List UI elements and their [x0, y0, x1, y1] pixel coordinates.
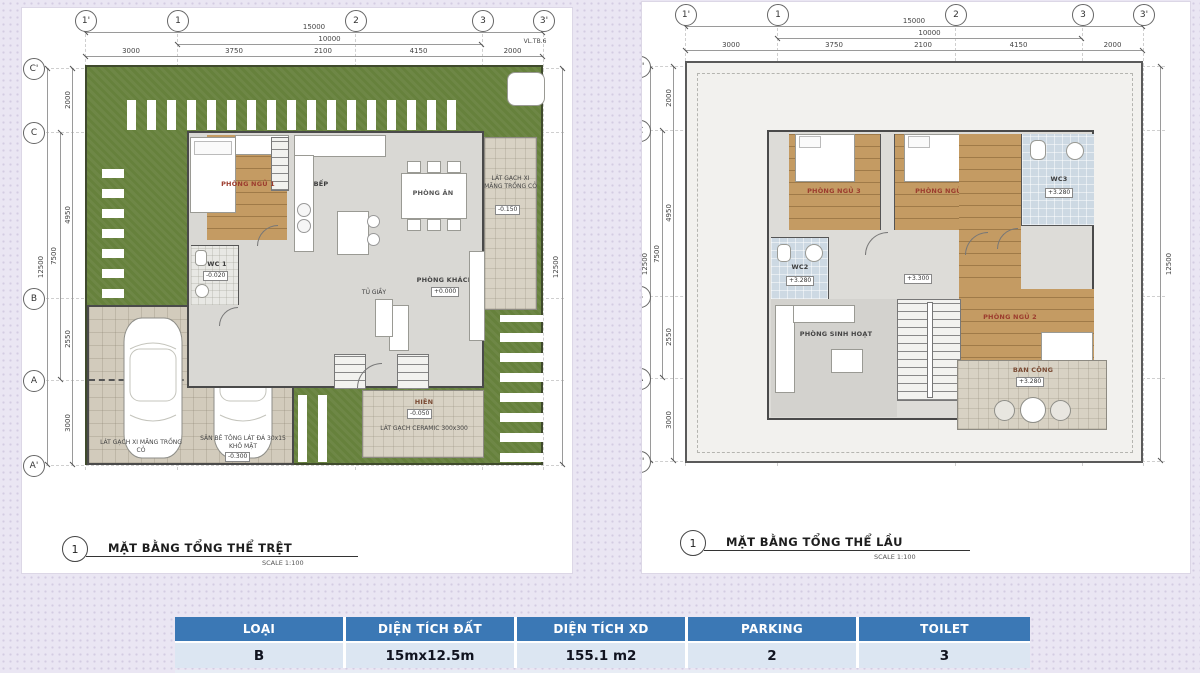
dim-text: 2100: [891, 41, 955, 49]
water-tank: [507, 72, 545, 106]
grid-bubble: 3': [1133, 4, 1155, 26]
dim-value: 4950: [665, 204, 673, 222]
patio-elevation: -0.150: [495, 205, 520, 215]
dim-line: [177, 44, 482, 45]
dim-value: 2000: [64, 91, 72, 109]
header-parking: PARKING: [688, 617, 859, 641]
grid-bubble: 3: [472, 10, 494, 32]
grid-bubble: 3: [1072, 4, 1094, 26]
dim-value: 12500: [37, 255, 45, 277]
dim-line: [777, 38, 1082, 39]
note-tag: VL.TB.6: [510, 38, 560, 46]
plan-scale: SCALE 1:100: [874, 553, 916, 561]
spec-table: LOẠI DIỆN TÍCH ĐẤT DIỆN TÍCH XD PARKING …: [175, 617, 1030, 673]
grid-bubble: A': [23, 455, 45, 477]
dim-text: 3000: [62, 380, 74, 465]
dim-text: 2550: [62, 298, 74, 380]
sink-icon: [1066, 142, 1084, 160]
dim-text: 3000: [663, 378, 675, 461]
dim-text: 2000: [62, 68, 74, 132]
roof-outline: PHÒNG NGỦ 3 PHÒNG NGỦ 4 WC2 +3.280 +3.30…: [685, 61, 1143, 463]
wc2: WC2 +3.280: [771, 237, 829, 299]
kitchen-label: BẾP: [301, 181, 341, 188]
grid-label: 1: [775, 10, 781, 20]
grid-label: C: [31, 128, 37, 138]
value-dien-tich-xd: 155.1 m2: [517, 641, 688, 668]
title-underline: [86, 556, 358, 557]
stove-icon: [297, 219, 311, 233]
shoe-cabinet-icon: [375, 299, 393, 337]
toilet-icon: [777, 244, 791, 262]
family-label: PHÒNG SINH HOẠT: [781, 331, 891, 338]
sofa-icon: [469, 251, 485, 341]
grid-label: A': [30, 461, 39, 471]
header-dien-tich-dat: DIỆN TÍCH ĐẤT: [346, 617, 517, 641]
dim-text: 2000: [663, 66, 675, 130]
grid-line: [1143, 28, 1144, 466]
wc3-elevation: +3.280: [1045, 188, 1073, 198]
stepping-stones: [500, 315, 543, 462]
grid-label: 3': [540, 16, 548, 26]
dim-line: [85, 56, 543, 57]
upper-floor-sheet: 1' 1 2 3 3' C' C B A A' 15000 10000 3000…: [642, 2, 1190, 573]
grid-label: 2: [953, 10, 959, 20]
dim-text: 12500: [1163, 66, 1175, 461]
sink-icon: [805, 244, 823, 262]
dim-line: [562, 68, 563, 465]
dim-text: 4150: [955, 41, 1082, 49]
grid-label: 1': [682, 10, 690, 20]
garage-note-left: LÁT GẠCH XI MĂNG TRỒNG CỎ: [95, 439, 187, 454]
grid-label: 1: [175, 16, 181, 26]
dim-value: 12500: [642, 252, 649, 274]
grid-bubble: 1: [167, 10, 189, 32]
sofa-icon: [793, 305, 855, 323]
dim-text: 10000: [777, 29, 1082, 37]
dim-value: 3000: [665, 411, 673, 429]
stair-icon: [397, 354, 429, 389]
wc3-label: WC3: [1036, 176, 1082, 183]
patio-note: LÁT GẠCH XI MĂNG TRỒNG CỎ: [483, 175, 538, 190]
toilet-icon: [1030, 140, 1046, 160]
pillow-icon: [194, 141, 232, 155]
dim-value: 7500: [50, 247, 58, 265]
grid-bubble: B: [23, 288, 45, 310]
chair-icon: [1050, 400, 1071, 421]
round-table-icon: [1020, 397, 1046, 423]
dim-line: [1160, 66, 1161, 461]
wc3: WC3 +3.280: [1021, 134, 1094, 226]
dim-text: 3000: [85, 47, 177, 55]
stepping-stones: [298, 395, 334, 462]
grid-bubble: 1: [767, 4, 789, 26]
dim-value: 2000: [665, 89, 673, 107]
grid-bubble: C: [23, 122, 45, 144]
header-toilet: TOILET: [859, 617, 1030, 641]
grid-label: A: [642, 374, 643, 384]
dim-text: 2000: [482, 47, 543, 55]
plot-ground: LÁT GẠCH XI MĂNG TRỒNG CỎ -0.150 LÁT GẠC…: [85, 65, 543, 465]
title-underline: [704, 550, 970, 551]
sofa-icon: [775, 305, 795, 393]
plan-title: MẶT BẰNG TỔNG THỂ LẦU: [726, 535, 903, 549]
grid-bubble: C': [23, 58, 45, 80]
dim-text: 2550: [663, 296, 675, 378]
balcony: BAN CÔNG +3.280: [957, 360, 1107, 430]
bedroom3-label: PHÒNG NGỦ 3: [791, 188, 877, 195]
porch-label: HIÊN: [384, 399, 464, 406]
dim-value: 3000: [64, 414, 72, 432]
plan-ref: 1: [62, 536, 88, 562]
plan-ref-number: 1: [72, 543, 79, 556]
grid-line: [46, 465, 564, 466]
house-ground: PHÒNG NGỦ 1 WC 1 -0.020 BẾP: [187, 131, 484, 388]
wc1-elevation: -0.020: [203, 271, 228, 281]
dim-line: [685, 50, 1143, 51]
chair-icon: [407, 161, 421, 173]
chair-icon: [447, 219, 461, 231]
pillow-icon: [799, 136, 821, 148]
chair-icon: [427, 161, 441, 173]
dim-text: 7500: [651, 130, 663, 378]
plan-ref: 1: [680, 530, 706, 556]
living-elevation: +0.000: [431, 287, 459, 297]
bedroom1-label: PHÒNG NGỦ 1: [211, 181, 285, 188]
grid-bubble: A: [23, 370, 45, 392]
porch: HIÊN -0.050 LÁT GẠCH CERAMIC 300x300: [362, 390, 484, 458]
kitchen-island: [337, 211, 369, 255]
grid-bubble: 2: [945, 4, 967, 26]
bedroom2-floor: [959, 134, 1021, 289]
grid-label: 3: [1080, 10, 1086, 20]
grid-label: 1': [82, 16, 90, 26]
header-loai: LOẠI: [175, 617, 346, 641]
dim-text: 3750: [177, 47, 291, 55]
spec-table-header-row: LOẠI DIỆN TÍCH ĐẤT DIỆN TÍCH XD PARKING …: [175, 617, 1030, 641]
dim-value: 2550: [64, 330, 72, 348]
page: { "grid": { "top": ["1'", "1", "2", "3",…: [0, 0, 1200, 670]
dim-value: 4950: [64, 206, 72, 224]
grid-label: C': [642, 62, 644, 72]
garage-elevation: -0.300: [225, 452, 250, 462]
wc2-elevation: +3.280: [786, 276, 814, 286]
chair-icon: [447, 161, 461, 173]
garage-note-right: SÂN BÊ TÔNG LÁT ĐÁ 30x15 KHÔ MẶT: [197, 435, 289, 450]
dim-text: 7500: [48, 132, 60, 380]
dim-text: 2100: [291, 47, 355, 55]
grid-label: 3: [480, 16, 486, 26]
grid-label: B: [31, 294, 37, 304]
chair-icon: [427, 219, 441, 231]
dim-text: 4150: [355, 47, 482, 55]
door-arc: [865, 232, 888, 255]
dim-value: 7500: [653, 245, 661, 263]
dim-text: 4950: [663, 130, 675, 296]
bedroom2-label: PHÒNG NGỦ 2: [965, 314, 1055, 321]
header-dien-tich-xd: DIỆN TÍCH XD: [517, 617, 688, 641]
dining-label: PHÒNG ĂN: [401, 190, 465, 197]
pergola-slats: [127, 100, 457, 130]
grid-bubble: 1': [75, 10, 97, 32]
dim-value: 12500: [1165, 252, 1173, 274]
patio: [484, 137, 537, 310]
hall-elevation: +3.300: [904, 274, 932, 284]
chair-icon: [367, 215, 380, 228]
balcony-elevation: +3.280: [1016, 377, 1044, 387]
kitchen-counter: [294, 135, 386, 157]
plan-ref-number: 1: [690, 537, 697, 550]
table-icon: [831, 349, 863, 373]
grid-bubble: 3': [533, 10, 555, 32]
value-loai: B: [175, 641, 346, 668]
grid-label: C': [30, 64, 39, 74]
grid-label: B: [642, 292, 643, 302]
pillow-icon: [908, 136, 930, 148]
grid-bubble: 1': [675, 4, 697, 26]
dim-value: 2550: [665, 328, 673, 346]
dim-value: 12500: [552, 255, 560, 277]
grid-label: 3': [1140, 10, 1148, 20]
dim-line: [60, 132, 61, 380]
plan-title: MẶT BẰNG TỔNG THỂ TRỆT: [108, 541, 292, 555]
grid-label: C: [642, 126, 643, 136]
grid-label: 2: [353, 16, 359, 26]
door-arc: [219, 307, 238, 326]
chair-icon: [994, 400, 1015, 421]
value-toilet: 3: [859, 641, 1030, 668]
porch-note: LÁT GẠCH CERAMIC 300x300: [379, 425, 469, 433]
grid-label: A: [31, 376, 37, 386]
stair-rail: [927, 302, 933, 398]
ground-floor-sheet: 1' 1 2 3 3' C' C B A A' 15000 10000 3000…: [22, 8, 572, 573]
chair-icon: [367, 233, 380, 246]
dim-text: 4950: [62, 132, 74, 298]
stove-icon: [297, 203, 311, 217]
plan-scale: SCALE 1:100: [262, 559, 304, 567]
grid-bubble: 2: [345, 10, 367, 32]
grid-label: A': [642, 457, 644, 467]
chair-icon: [407, 219, 421, 231]
shoe-cabinet-label: TỦ GIẦY: [351, 289, 397, 296]
family-room: PHÒNG SINH HOẠT: [771, 299, 897, 417]
side-steps: [102, 160, 124, 298]
wc2-label: WC2: [777, 264, 823, 271]
dim-text: 12500: [550, 68, 562, 465]
dim-text: 10000: [177, 35, 482, 43]
balcony-label: BAN CÔNG: [993, 367, 1073, 374]
dim-text: 3000: [685, 41, 777, 49]
value-parking: 2: [688, 641, 859, 668]
value-dien-tich-dat: 15mx12.5m: [346, 641, 517, 668]
porch-elevation: -0.050: [407, 409, 432, 419]
wc1-label: WC 1: [195, 261, 239, 268]
dim-text: 3750: [777, 41, 891, 49]
dim-line: [85, 32, 543, 33]
dim-line: [685, 26, 1143, 27]
dim-text: 2000: [1082, 41, 1143, 49]
sink-icon: [195, 284, 209, 298]
spec-table-value-row: B 15mx12.5m 155.1 m2 2 3: [175, 641, 1030, 668]
